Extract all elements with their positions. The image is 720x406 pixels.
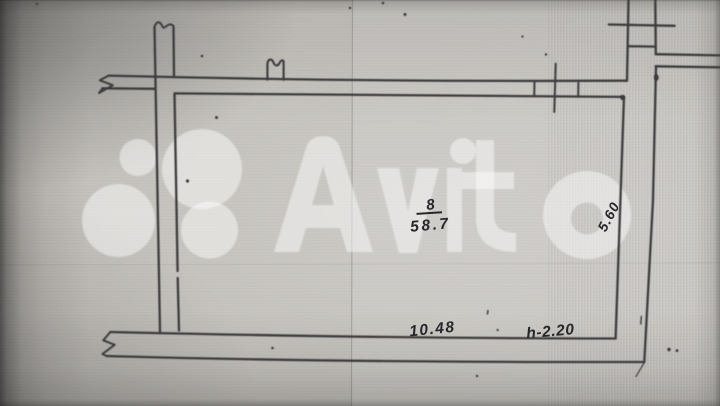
svg-text:58.7: 58.7 [410, 215, 452, 235]
svg-text:8: 8 [425, 196, 436, 214]
